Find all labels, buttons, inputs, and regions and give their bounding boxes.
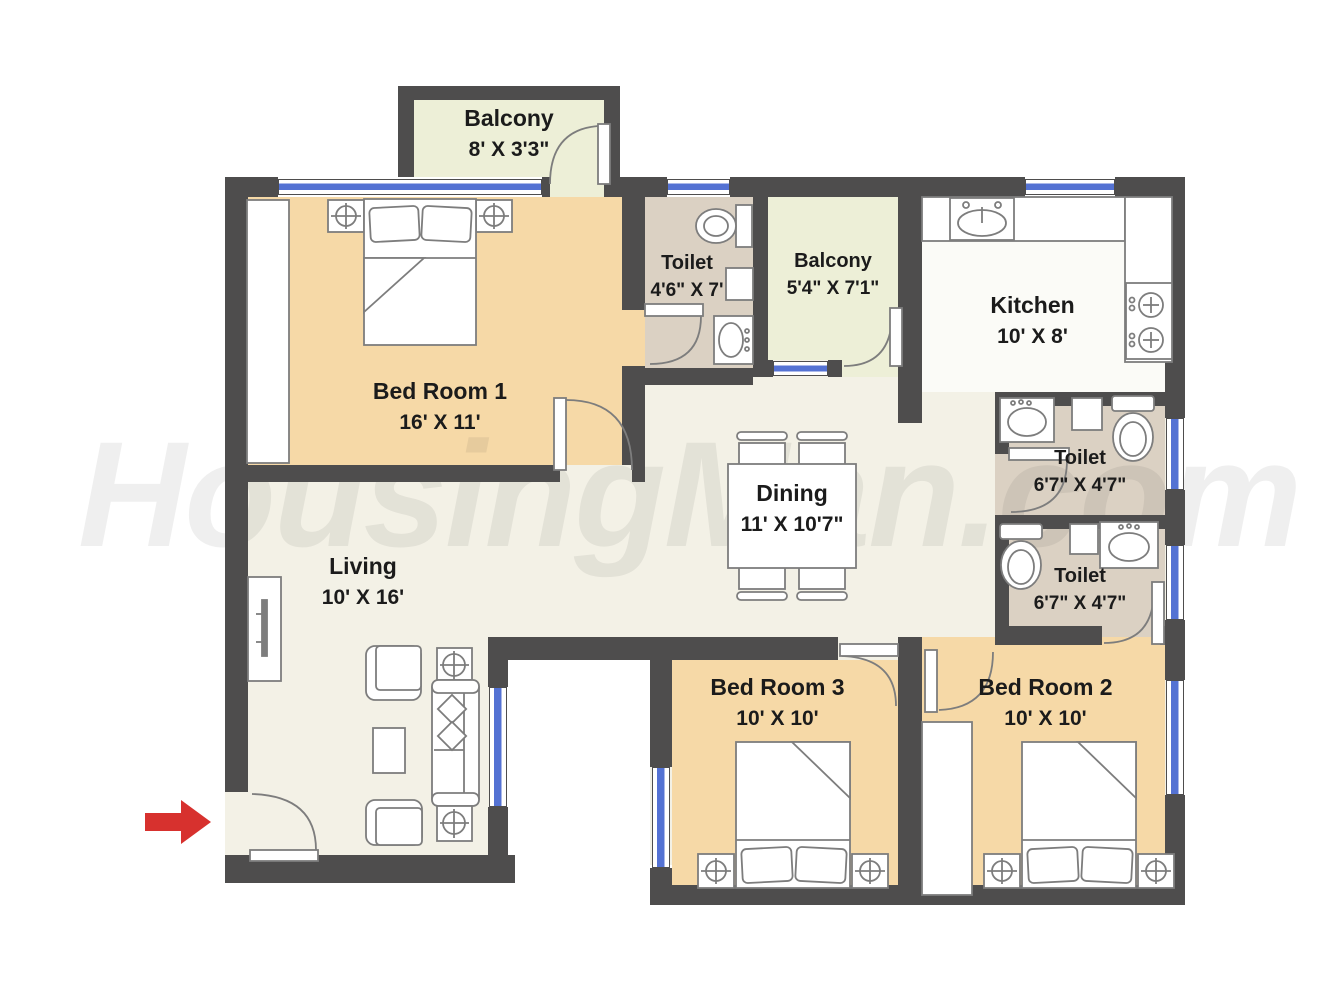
room-label-toilet-top: Toilet 4'6" X 7' xyxy=(624,249,750,305)
armchair-icon xyxy=(366,646,421,700)
room-label-balcony-right: Balcony 5'4" X 7'1" xyxy=(762,247,904,303)
room-size: 5'4" X 7'1" xyxy=(762,275,904,303)
washbasin-icon xyxy=(1000,398,1054,442)
armchair-icon xyxy=(366,800,422,845)
side-table-icon xyxy=(437,648,472,683)
room-name: Living xyxy=(263,551,463,582)
nightstand-icon xyxy=(984,854,1020,888)
room-size: 10' X 10' xyxy=(660,703,895,734)
room-label-kitchen: Kitchen 10' X 8' xyxy=(930,290,1135,352)
door-balcony-right xyxy=(844,308,902,366)
wardrobe-bedroom1 xyxy=(247,200,289,463)
room-size: 16' X 11' xyxy=(285,407,595,438)
furniture-layer xyxy=(0,0,1333,1000)
room-size: 11' X 10'7" xyxy=(722,509,862,540)
room-name: Balcony xyxy=(400,103,618,134)
door-entrance xyxy=(250,794,318,861)
room-size: 4'6" X 7' xyxy=(624,277,750,305)
sofa-icon xyxy=(432,680,479,806)
room-name: Balcony xyxy=(762,247,904,275)
nightstand-icon xyxy=(1138,854,1174,888)
room-size: 10' X 16' xyxy=(263,582,463,613)
washbasin-icon xyxy=(714,316,753,364)
room-name: Dining xyxy=(722,478,862,509)
room-size: 10' X 8' xyxy=(930,321,1135,352)
room-label-toilet-lower: Toilet 6'7" X 4'7" xyxy=(1000,562,1160,618)
room-name: Toilet xyxy=(1000,562,1160,590)
bed-icon xyxy=(736,742,850,888)
kitchen-sink-icon xyxy=(950,198,1014,240)
wc-icon xyxy=(696,205,752,247)
nightstand-icon xyxy=(328,200,364,232)
room-label-bedroom2: Bed Room 2 10' X 10' xyxy=(928,672,1163,734)
nightstand-icon xyxy=(476,200,512,232)
room-name: Bed Room 2 xyxy=(928,672,1163,703)
room-size: 10' X 10' xyxy=(928,703,1163,734)
entrance-arrow-icon xyxy=(145,800,211,844)
room-name: Toilet xyxy=(624,249,750,277)
room-name: Bed Room 3 xyxy=(660,672,895,703)
floor-plan: HousingMan.com xyxy=(0,0,1333,1000)
room-label-dining: Dining 11' X 10'7" xyxy=(722,478,862,540)
bed-icon xyxy=(364,199,476,345)
wardrobe-bedroom2 xyxy=(922,722,972,895)
room-label-living: Living 10' X 16' xyxy=(263,551,463,613)
nightstand-icon xyxy=(852,854,888,888)
room-name: Kitchen xyxy=(930,290,1135,321)
nightstand-icon xyxy=(698,854,734,888)
room-name: Bed Room 1 xyxy=(285,376,595,407)
door-toilet-top xyxy=(645,304,703,364)
room-label-toilet-upper: Toilet 6'7" X 4'7" xyxy=(1000,444,1160,500)
room-label-bedroom1: Bed Room 1 16' X 11' xyxy=(285,376,595,438)
room-size: 8' X 3'3" xyxy=(400,134,618,165)
room-label-balcony-top: Balcony 8' X 3'3" xyxy=(400,103,618,165)
side-table-icon xyxy=(437,806,472,841)
room-size: 6'7" X 4'7" xyxy=(1000,590,1160,618)
coffee-table-icon xyxy=(373,728,405,773)
bed-icon xyxy=(1022,742,1136,888)
shelf-icon xyxy=(1070,524,1098,554)
room-label-bedroom3: Bed Room 3 10' X 10' xyxy=(660,672,895,734)
room-name: Toilet xyxy=(1000,444,1160,472)
shelf-icon xyxy=(1072,398,1102,430)
room-size: 6'7" X 4'7" xyxy=(1000,472,1160,500)
